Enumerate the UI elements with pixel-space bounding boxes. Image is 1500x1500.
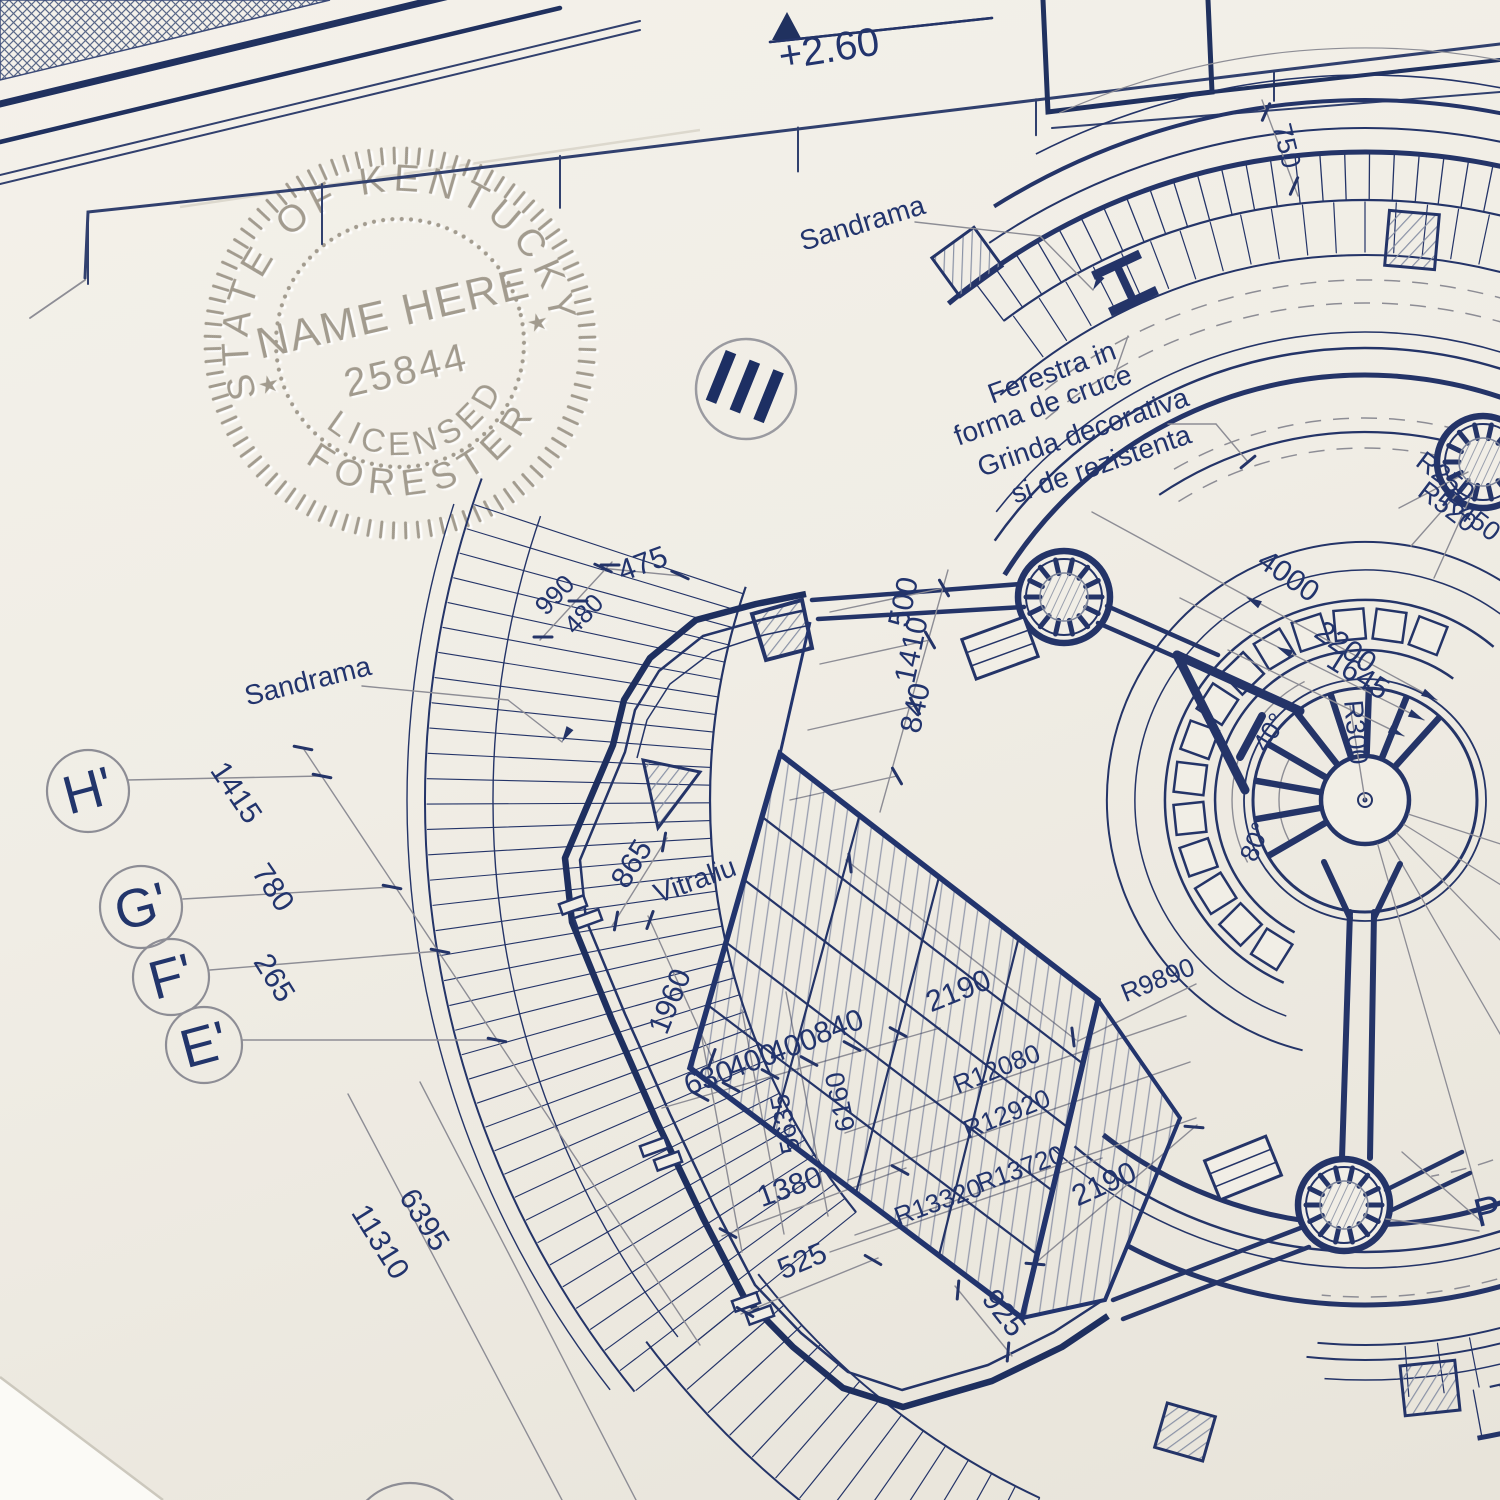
glazing-outline	[690, 754, 1098, 1318]
parapet-line	[1212, 60, 1500, 92]
parapet-line-thin	[1052, 92, 1500, 128]
axis-label: H'	[56, 756, 119, 827]
axis-label: E'	[174, 1010, 234, 1080]
dimension-label: 265	[247, 948, 302, 1008]
axis-bubbles: H'G'F'E'D'	[47, 750, 472, 1500]
embossed-seal: STATE OF KENTUCKY ★ ★ NAME HERE 25844 LI…	[166, 109, 634, 577]
dimension-label: 525	[773, 1236, 832, 1286]
dimension-label: R9890	[1116, 951, 1198, 1008]
dimension-label: R300	[1338, 699, 1374, 766]
axis-bubble-H: H'	[47, 750, 129, 832]
blueprint-photo: STATE OF KENTUCKY ★ ★ NAME HERE 25844 LI…	[0, 0, 1500, 1500]
dimension-label: 750	[1267, 120, 1307, 171]
axis-bubble-F: F'	[133, 939, 209, 1015]
edge-stub	[30, 280, 85, 318]
axis-bubble-E: E'	[166, 1007, 242, 1083]
dimension-label: 780	[245, 858, 300, 918]
dimension-label: 1415	[204, 756, 269, 830]
label-sandrama-top: Sandrama	[796, 189, 929, 257]
dimension-label: 475	[614, 540, 672, 588]
dimension-label: 840	[894, 680, 937, 736]
section-marker-roman: III	[695, 332, 799, 442]
label-partial-p: P	[1470, 1187, 1500, 1236]
axis-label: F'	[142, 942, 199, 1011]
axis-label: G'	[108, 871, 174, 942]
axis-bubble-D: D'	[348, 1483, 472, 1500]
blueprint-drawing: STATE OF KENTUCKY ★ ★ NAME HERE 25844 LI…	[0, 0, 1500, 1500]
dimension-label: 1380	[753, 1160, 827, 1214]
seal-star-left-icon: ★	[255, 370, 282, 401]
label-sandrama-left: Sandrama	[241, 650, 374, 711]
axis-bubble-G: G'	[100, 866, 182, 948]
dimension-label: 40°	[1246, 708, 1292, 757]
